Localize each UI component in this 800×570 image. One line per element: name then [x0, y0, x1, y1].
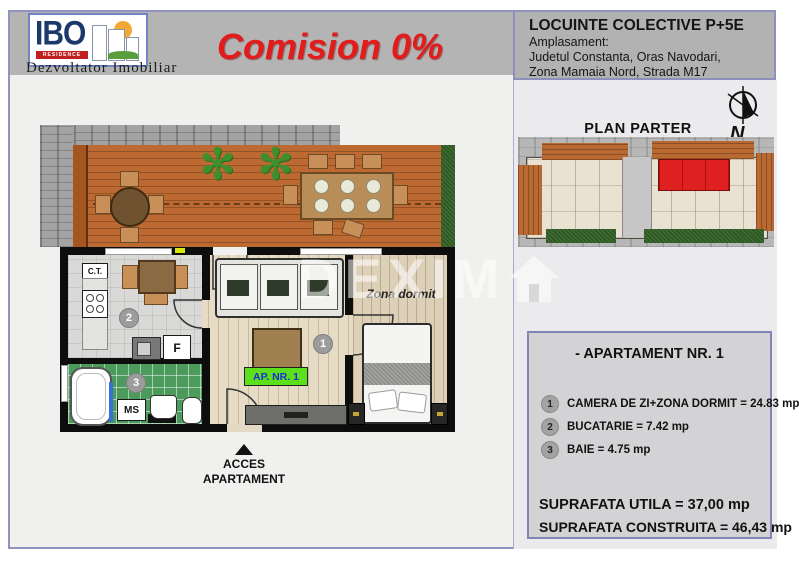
room-number-badge: 3 [541, 441, 559, 459]
location-label: Amplasament: [529, 35, 774, 50]
room-area-label: BAIE = 4.75 mp [567, 444, 650, 456]
site-plan-terrace [542, 143, 628, 160]
room-area-row: 2 BUCATARIE = 7.42 mp [541, 418, 689, 436]
sleep-zone-label: Zona dormit [356, 287, 446, 301]
kitchen-number-badge: 2 [119, 308, 139, 328]
site-plan-terrace [518, 165, 542, 235]
flyer-page: IBO RESIDENCE Dezvoltator Imobiliar Comi… [0, 0, 800, 570]
compass-icon [724, 86, 762, 124]
terrace-chair [120, 227, 139, 243]
stove [82, 290, 108, 318]
terrace-round-table [110, 187, 150, 227]
site-plan-terrace [652, 141, 754, 159]
logo-building-icon [92, 25, 107, 61]
apartment-number-label: AP. NR. 1 [244, 367, 308, 386]
terrace-dining-table [300, 172, 394, 220]
site-plan-terrace [756, 153, 774, 231]
site-plan-hedge [546, 229, 616, 243]
kitchen-sink [132, 337, 161, 360]
room-area-row: 3 BAIE = 4.75 mp [541, 441, 650, 459]
room-number-badge: 1 [541, 395, 559, 413]
bed [362, 323, 432, 424]
access-arrow-icon [235, 444, 253, 455]
logo-text: IBO [35, 14, 85, 53]
fridge-label: F [163, 335, 191, 360]
site-plan-highlighted-apartment [658, 159, 730, 191]
logo-hill-icon [108, 51, 138, 59]
bathroom-divider [109, 382, 113, 422]
usable-area-total: SUPRAFATA UTILA = 37,00 mp [539, 497, 750, 513]
project-title: LOCUINTE COLECTIVE P+5E [529, 17, 774, 35]
company-logo: IBO RESIDENCE [28, 13, 148, 67]
terrace-chair [148, 195, 164, 214]
tv-dresser [245, 405, 347, 425]
access-line1: ACCES [174, 457, 314, 472]
room-number-badge: 2 [541, 418, 559, 436]
bathroom-number-badge: 3 [126, 373, 146, 393]
apartment-floor-plan: C.T. 2 F 3 MS 1 AP. NR. 1 [60, 247, 455, 432]
location-line1: Judetul Constanta, Oras Navodari, [529, 50, 774, 65]
toilet [182, 397, 202, 424]
bathtub [70, 367, 112, 426]
living-number-badge: 1 [313, 334, 333, 354]
room-area-label: CAMERA DE ZI+ZONA DORMIT = 24.83 mp [567, 398, 799, 410]
room-area-label: BUCATARIE = 7.42 mp [567, 421, 689, 433]
apartment-access-label: ACCES APARTAMENT [174, 444, 314, 487]
washer-label: MS [117, 399, 146, 421]
site-plan-thumbnail [518, 137, 774, 247]
terrace-chair [341, 218, 365, 238]
nightstand [348, 403, 365, 425]
site-plan-title: PLAN PARTER [553, 121, 723, 137]
apartment-info-box: - APARTAMENT NR. 1 1 CAMERA DE ZI+ZONA D… [527, 331, 772, 539]
terrace-hedge [441, 145, 455, 250]
terrace-chair [393, 185, 408, 205]
terrace-chair [313, 220, 333, 235]
plant-icon: ✻ [199, 145, 236, 185]
terrace-stone-border [40, 125, 73, 247]
terrace-deck: ✻ ✻ [73, 145, 455, 250]
site-plan-hedge [644, 229, 764, 243]
kitchen-table [138, 260, 176, 294]
sofa [215, 258, 344, 318]
project-header: LOCUINTE COLECTIVE P+5E Amplasament: Jud… [513, 10, 776, 80]
terrace-chair [95, 195, 111, 214]
deck-edge-board [73, 145, 88, 250]
access-line2: APARTAMENT [174, 472, 314, 487]
terrace-chair [308, 154, 328, 169]
promo-banner: Comision 0% [150, 26, 510, 68]
nightstand [431, 403, 448, 425]
kitchen-chair [122, 265, 138, 289]
location-line2: Zona Mamaia Nord, Strada M17 [529, 65, 774, 80]
built-area-total: SUPRAFATA CONSTRUITA = 46,43 mp [539, 519, 792, 535]
terrace-chair [335, 154, 355, 169]
plant-icon: ✻ [257, 145, 294, 185]
bathroom-sink [150, 395, 177, 419]
room-area-row: 1 CAMERA DE ZI+ZONA DORMIT = 24.83 mp [541, 395, 799, 413]
terrace-chair [283, 185, 298, 205]
site-plan-entrance-path [622, 157, 652, 237]
terrace-chair [362, 154, 382, 169]
terrace-chair [120, 171, 139, 187]
apartment-info-title: - APARTAMENT NR. 1 [529, 346, 770, 362]
logo-residence-text: RESIDENCE [36, 51, 88, 59]
